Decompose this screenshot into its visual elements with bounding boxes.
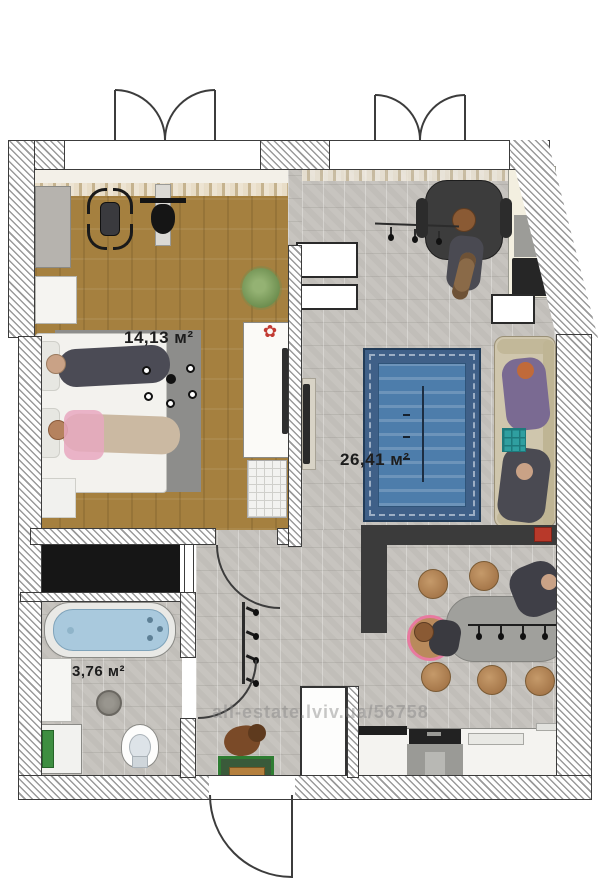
wall-bathroom-right-lower — [180, 718, 196, 778]
bar-counter-icon — [361, 545, 387, 633]
wall-right — [556, 334, 592, 778]
person-dining-1-head — [541, 574, 557, 590]
coat-rack-icon — [242, 602, 245, 684]
coffee-table-icon — [502, 428, 526, 452]
passage-floor — [288, 170, 302, 245]
wall-partition — [288, 245, 302, 547]
wall-bathroom-right-upper — [180, 592, 196, 658]
floor-plan-canvas: ✿ 14,13 м² — [0, 0, 600, 896]
red-item — [534, 527, 552, 542]
dishwasher-door — [425, 752, 445, 776]
entrance-door-arc-icon — [210, 795, 292, 878]
flower-decor-icon: ✿ — [260, 322, 280, 342]
stool-icon — [418, 569, 448, 599]
dresser-white — [35, 276, 77, 324]
person-dining-2-head — [414, 622, 434, 642]
french-balcony-door-right-icon — [375, 95, 465, 140]
sink-icon — [468, 733, 524, 745]
person-sofa-1-head — [517, 362, 534, 379]
bar-counter-icon — [361, 525, 561, 545]
coat-hook-dot — [253, 609, 259, 616]
coat-hook-dot — [253, 680, 259, 687]
wardrobe-black — [38, 545, 180, 593]
stool-icon — [477, 665, 507, 695]
hob-knob — [427, 732, 441, 736]
wall-bottom-left — [18, 775, 210, 800]
bathroom-area-label: 3,76 м² — [72, 663, 125, 680]
toilet-icon — [118, 724, 162, 774]
wall-left-upper — [8, 140, 35, 338]
exercise-bike-icon — [85, 186, 135, 252]
pink-blanket — [64, 410, 104, 460]
entrance-opening — [209, 775, 295, 800]
window-balcony-left — [64, 140, 261, 170]
chair-armrest — [500, 198, 512, 238]
wall-bathroom-top — [20, 592, 196, 602]
bedroom-window-sill — [35, 170, 288, 183]
tv-living-icon — [303, 384, 310, 464]
person-sofa-2 — [496, 445, 553, 524]
coat-hook-dot — [253, 633, 259, 640]
rug-blue — [363, 348, 481, 522]
floor-drain-icon — [96, 690, 122, 716]
wall-bedroom-bottom — [30, 528, 216, 545]
grid-mat — [247, 460, 287, 518]
chair-armrest — [416, 198, 428, 238]
dog-head — [248, 724, 266, 742]
wall-left-lower — [18, 336, 42, 778]
watermark: all-estate.lviv.ua/56758 — [212, 702, 429, 723]
bathtub-icon — [44, 602, 176, 658]
pendant-bulb — [520, 633, 526, 640]
lamp-bulb — [436, 238, 442, 245]
person-on-bed-1-head — [46, 354, 66, 374]
person-sofa-2-head — [516, 463, 533, 480]
chandelier-icon — [140, 352, 204, 410]
treadmill-icon — [140, 184, 186, 250]
living-area-label: 26,41 м² — [340, 450, 410, 470]
french-balcony-door-left-icon — [115, 90, 215, 140]
counter-item — [536, 723, 558, 731]
lamp-bulb — [412, 236, 418, 243]
stove-strip — [359, 726, 407, 735]
person-desk-head — [452, 208, 476, 232]
wall-kitchen-stub — [347, 686, 359, 778]
shelf-unit — [296, 242, 358, 278]
wall-shelf — [491, 294, 535, 324]
entry-closet — [300, 686, 347, 778]
pendant-lights-icon — [468, 624, 556, 626]
pendant-bulb — [476, 633, 482, 640]
bathroom-cabinet — [40, 658, 72, 722]
shelf-unit — [296, 284, 358, 310]
bedroom-area-label: 14,13 м² — [124, 328, 194, 348]
plant-icon — [242, 268, 280, 308]
pendant-bulb — [498, 633, 504, 640]
pendant-bulb — [542, 633, 548, 640]
lamp-bulb — [388, 234, 394, 241]
wall-bottom-right — [294, 775, 592, 800]
wardrobe-grey — [35, 186, 71, 268]
stool-icon — [525, 666, 555, 696]
bedside-mat — [38, 478, 76, 518]
coat-hook-dot — [253, 657, 259, 664]
washing-machine-icon — [38, 724, 82, 774]
window-balcony-right — [329, 140, 510, 170]
wall-top-mid — [260, 140, 330, 170]
stool-icon — [421, 662, 451, 692]
stool-icon — [469, 561, 499, 591]
